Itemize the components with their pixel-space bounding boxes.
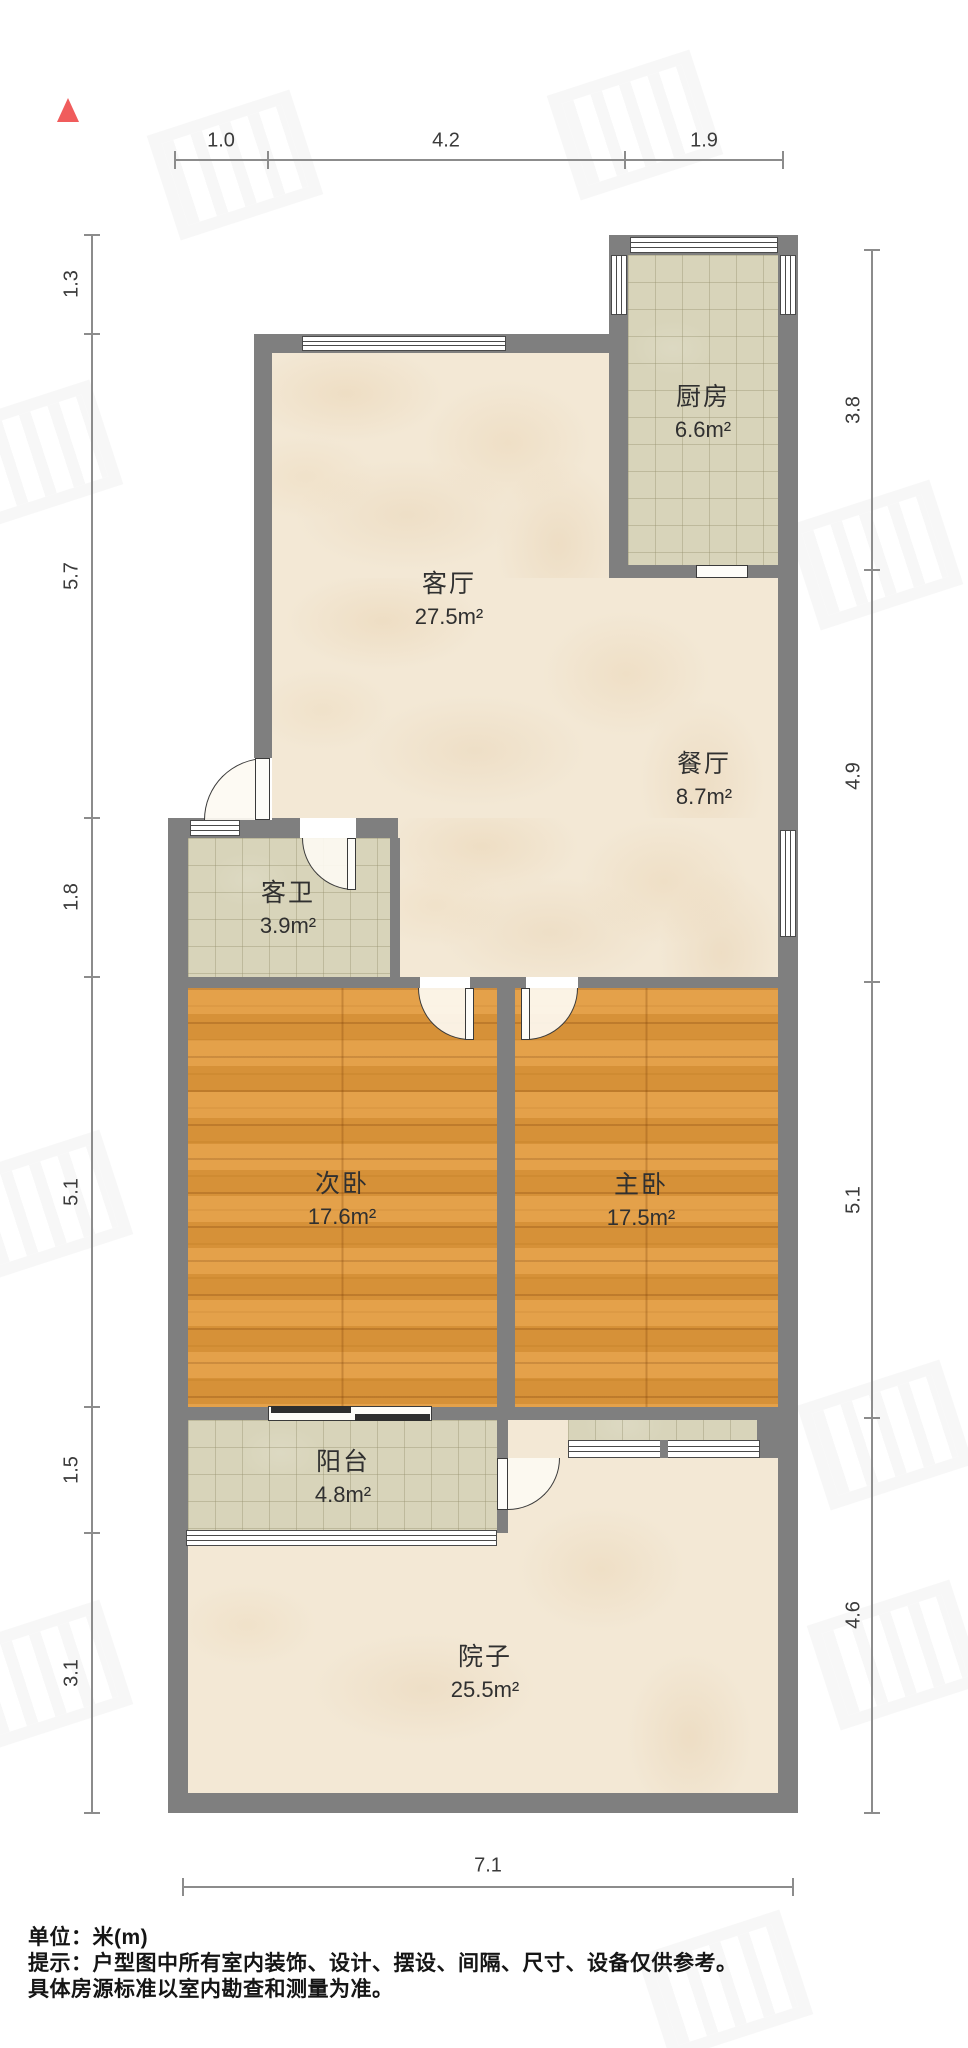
dim-tick — [864, 249, 880, 251]
dim-line-right — [871, 250, 873, 1813]
dim-label: 4.6 — [843, 1601, 866, 1629]
dim-tick — [864, 1417, 880, 1419]
dim-tick — [84, 234, 100, 236]
dim-label: 3.1 — [61, 1659, 84, 1687]
dim-label: 1.3 — [61, 270, 84, 298]
footer-tip-line2: 具体房源标准以室内勘查和测量为准。 — [28, 1977, 738, 2003]
dim-tick — [84, 976, 100, 978]
dim-tick — [84, 1532, 100, 1534]
dim-label: 3.8 — [843, 396, 866, 424]
room-label-balcony: 阳台 4.8m² — [315, 1442, 371, 1508]
wall-bath-right — [390, 838, 400, 977]
footer-tip-line1: 提示：户型图中所有室内装饰、设计、摆设、间隔、尺寸、设备仅供参考。 — [28, 1951, 738, 1977]
dim-tick — [864, 569, 880, 571]
room-name: 客厅 — [415, 564, 483, 600]
footer-disclaimer: 单位：米(m) 提示：户型图中所有室内装饰、设计、摆设、间隔、尺寸、设备仅供参考… — [28, 1925, 738, 2003]
room-name: 阳台 — [315, 1442, 371, 1478]
window-dining-right — [780, 830, 796, 937]
wall-between-bedrooms — [497, 988, 515, 1407]
wall-yard-bottom — [168, 1793, 798, 1813]
dim-label: 5.7 — [61, 562, 84, 590]
wall-kitchen-bottom — [609, 565, 778, 578]
dim-label: 5.1 — [61, 1178, 84, 1206]
room-name: 主卧 — [607, 1165, 675, 1201]
dim-label: 4.9 — [843, 762, 866, 790]
dim-tick — [267, 151, 269, 169]
dim-tick — [864, 1812, 880, 1814]
dim-tick — [84, 817, 100, 819]
second-bedroom-door-leaf — [465, 988, 474, 1040]
dim-label: 1.0 — [207, 130, 235, 153]
room-name: 院子 — [451, 1637, 519, 1673]
window-kitchen-right — [780, 255, 796, 315]
entry-door-leaf — [255, 758, 270, 820]
wall-bedrooms-top — [168, 977, 778, 988]
room-area: 4.8m² — [315, 1482, 371, 1508]
room-area: 3.9m² — [260, 913, 316, 939]
dim-tick — [84, 1406, 100, 1408]
yard-door-leaf — [497, 1458, 508, 1510]
watermark — [797, 1360, 968, 1511]
dim-tick — [782, 151, 784, 169]
window-balcony-bottom — [186, 1530, 497, 1546]
window-porch-divider — [660, 1440, 668, 1458]
watermark — [807, 1580, 968, 1731]
dim-label: 1.8 — [61, 883, 84, 911]
door-opening-second-bedroom — [420, 977, 470, 988]
dim-label: 4.2 — [432, 130, 460, 153]
wall-living-left — [254, 334, 272, 820]
door-opening-bath — [300, 818, 356, 838]
room-label-guest-bath: 客卫 3.9m² — [260, 873, 316, 939]
door-opening-master-bedroom — [526, 977, 578, 988]
window-living-top — [302, 336, 506, 351]
room-label-kitchen: 厨房 6.6m² — [675, 377, 731, 443]
watermark — [787, 480, 964, 631]
room-floor-dining — [398, 818, 778, 977]
dim-tick — [792, 1878, 794, 1896]
sliding-door-panel — [355, 1414, 430, 1421]
wall-porch-cap — [757, 1418, 778, 1458]
kitchen-pass-opening — [696, 565, 748, 578]
room-name: 厨房 — [675, 377, 731, 413]
room-area: 27.5m² — [415, 604, 483, 630]
room-label-master-bedroom: 主卧 17.5m² — [607, 1165, 675, 1231]
master-bedroom-door-leaf — [521, 988, 530, 1040]
room-floor-living — [272, 353, 609, 578]
wall-right-outer — [778, 235, 798, 1813]
porch-tile-strip — [568, 1418, 757, 1440]
window-kitchen-left — [611, 255, 627, 315]
room-label-yard: 院子 25.5m² — [451, 1637, 519, 1703]
room-area: 6.6m² — [675, 417, 731, 443]
window-bath — [190, 820, 240, 836]
dim-label: 5.1 — [843, 1186, 866, 1214]
wall-left-outer — [168, 818, 188, 1813]
room-area: 8.7m² — [676, 784, 732, 810]
watermark — [0, 380, 123, 531]
dim-label: 1.5 — [61, 1456, 84, 1484]
room-label-second-bedroom: 次卧 17.6m² — [308, 1164, 376, 1230]
north-arrow-icon — [57, 98, 79, 122]
dim-label: 7.1 — [474, 1855, 502, 1878]
dim-tick — [174, 151, 176, 169]
room-name: 客卫 — [260, 873, 316, 909]
window-kitchen-top — [630, 237, 778, 253]
room-area: 17.6m² — [308, 1204, 376, 1230]
dim-tick — [182, 1878, 184, 1896]
room-name: 次卧 — [308, 1164, 376, 1200]
bath-door-leaf — [347, 838, 356, 890]
dim-line-bottom — [183, 1886, 793, 1888]
dim-line-left — [91, 235, 93, 1813]
dim-tick — [864, 981, 880, 983]
dim-tick — [624, 151, 626, 169]
room-area: 17.5m² — [607, 1205, 675, 1231]
footer-unit-line: 单位：米(m) — [28, 1925, 738, 1951]
wall-bedrooms-bottom — [168, 1407, 778, 1420]
watermark — [547, 50, 724, 201]
dim-tick — [84, 333, 100, 335]
room-label-dining: 餐厅 8.7m² — [676, 744, 732, 810]
dim-tick — [84, 1812, 100, 1814]
room-area: 25.5m² — [451, 1677, 519, 1703]
sliding-door-panel — [271, 1406, 351, 1413]
dim-label: 1.9 — [690, 130, 718, 153]
room-name: 餐厅 — [676, 744, 732, 780]
room-label-living: 客厅 27.5m² — [415, 564, 483, 630]
floorplan-page: 厨房 6.6m² 客厅 27.5m² 餐厅 8.7m² 客卫 3.9m² 次卧 … — [0, 0, 968, 2048]
